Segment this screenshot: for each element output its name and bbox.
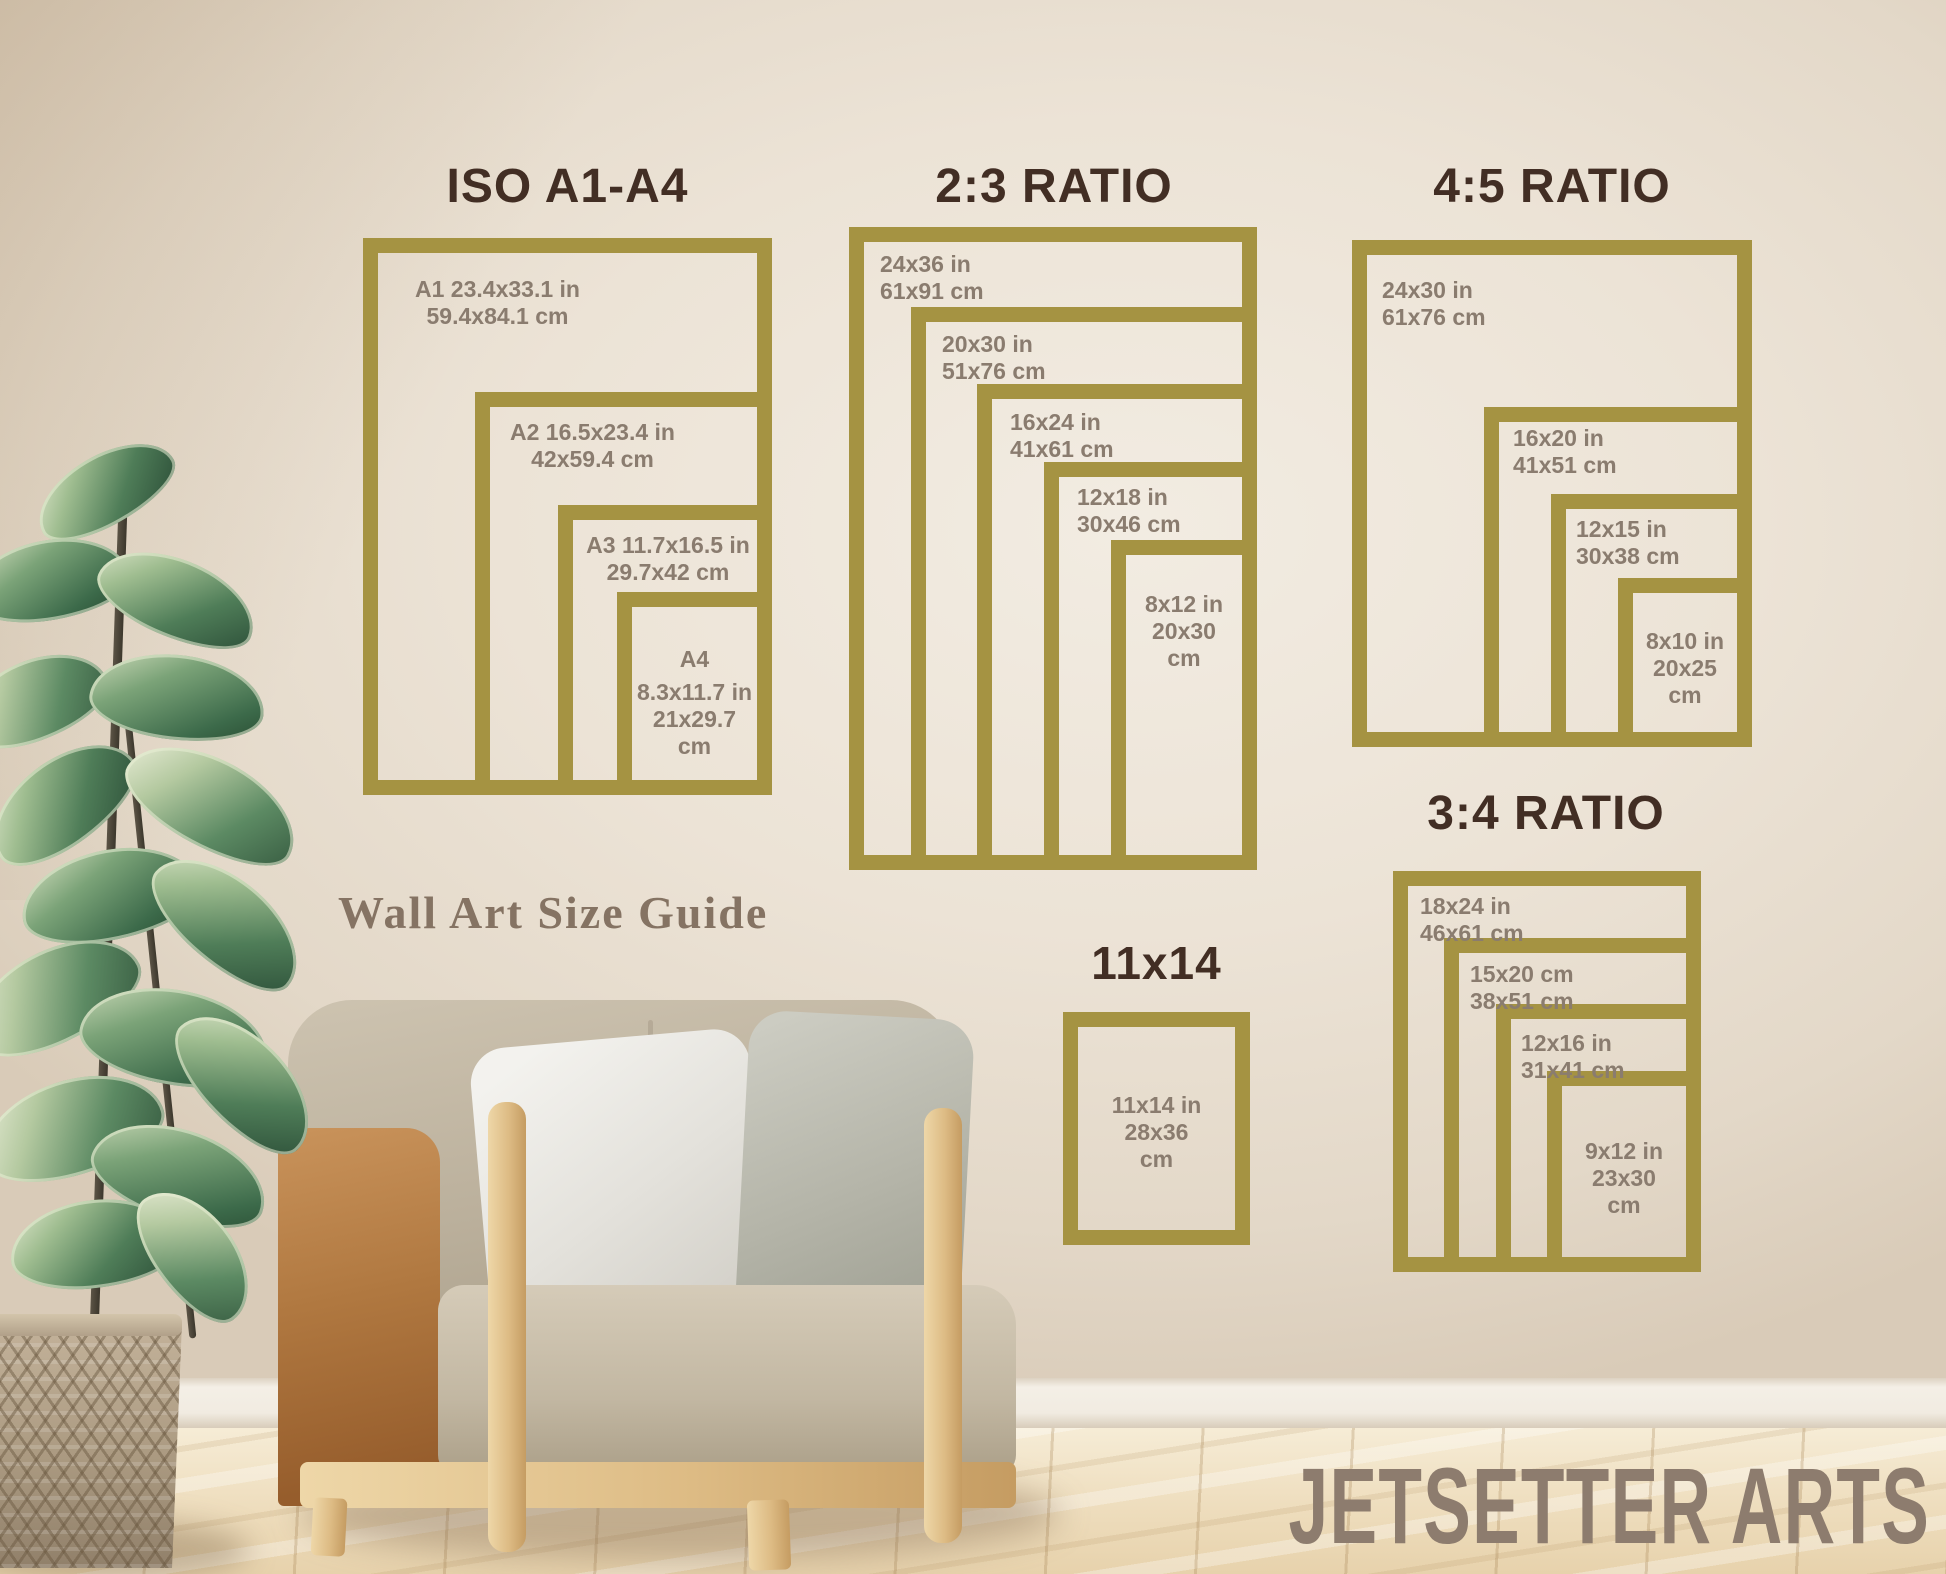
brand-watermark: JETSETTER ARTS [1288,1452,1930,1560]
chair-right-post [924,1108,962,1543]
frame-label-11x14: 11x14 in 28x36 cm [1068,1092,1245,1173]
leather-side-panel [278,1128,440,1506]
frame-label-8x10: 8x10 in 20x25 cm [1623,628,1747,709]
frame-label-a4: A4 8.3x11.7 in 21x29.7 cm [625,646,764,761]
section-title-iso: ISO A1-A4 [340,163,795,211]
chair-wood-rail [300,1462,1016,1508]
frame-label-24x36: 24x36 in61x91 cm [880,251,984,305]
frame-label-20x30: 20x30 in51x76 cm [942,331,1046,385]
frame-label-12x18: 12x18 in30x46 cm [1077,484,1181,538]
chair-rear-left-leg [311,1497,348,1557]
frame-label-24x30: 24x30 in61x76 cm [1382,277,1486,331]
frame-label-16x20: 16x20 in41x51 cm [1513,425,1617,479]
wall-art-size-guide-caption: Wall Art Size Guide [338,886,768,939]
section-title-4-5: 4:5 RATIO [1332,163,1772,211]
section-title-3-4: 3:4 RATIO [1346,790,1746,838]
frame-label-a3: A3 11.7x16.5 in29.7x42 cm [577,532,759,586]
section-title-11x14: 11x14 [1056,940,1257,986]
frame-label-a1: A1 23.4x33.1 in59.4x84.1 cm [385,276,610,330]
section-title-2-3: 2:3 RATIO [828,163,1280,211]
frame-label-9x12: 9x12 in 23x30 cm [1552,1138,1696,1219]
chair-left-post [488,1102,526,1552]
room-scene: ISO A1-A4 A1 23.4x33.1 in59.4x84.1 cm A2… [0,0,1946,1574]
frame-label-a2: A2 16.5x23.4 in42x59.4 cm [495,419,690,473]
frame-8x12 [1111,540,1257,870]
wicker-basket-rim [0,1314,182,1336]
frame-label-18x24: 18x24 in46x61 cm [1420,893,1524,947]
chair-front-right-leg [747,1499,791,1570]
frame-label-12x16: 12x16 in31x41 cm [1521,1030,1625,1084]
wicker-basket [0,1322,182,1568]
frame-label-12x15: 12x15 in30x38 cm [1576,516,1680,570]
frame-label-8x12: 8x12 in 20x30 cm [1116,591,1252,672]
frame-label-15x20: 15x20 cm38x51 cm [1470,961,1574,1015]
frame-label-16x24: 16x24 in41x61 cm [1010,409,1114,463]
